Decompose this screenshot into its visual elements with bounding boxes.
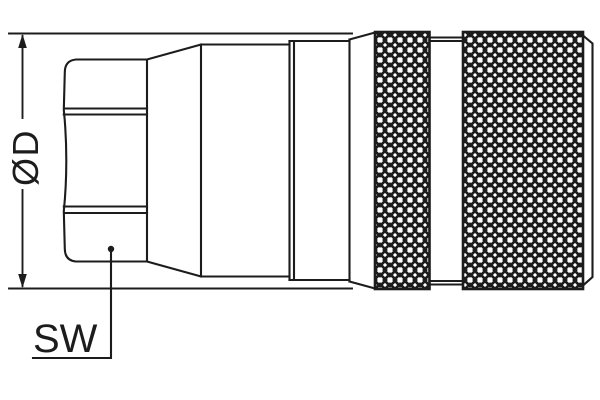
diameter-dimension [9,34,352,289]
arrow-down-icon [18,274,27,288]
wrench-size-label: SW [33,317,98,361]
chamfer-top [350,33,376,40]
body-cylinder [201,41,294,280]
hex-nut [64,60,147,262]
technical-drawing: ØD SW [0,0,600,400]
end-cap [583,36,593,286]
transition-cone [147,45,201,277]
chamfer-bottom [350,282,376,289]
hex-nut-outline [64,60,147,262]
arrow-up-icon [18,34,27,48]
knurl-band-front [375,32,430,289]
sleeve-rear [290,33,376,289]
drawing-canvas: ØD SW [0,0,600,400]
drawing-art: ØD SW [5,32,593,361]
sleeve-groove [430,38,464,285]
diameter-label: ØD [5,129,46,186]
knurl-band-rear [463,32,583,289]
